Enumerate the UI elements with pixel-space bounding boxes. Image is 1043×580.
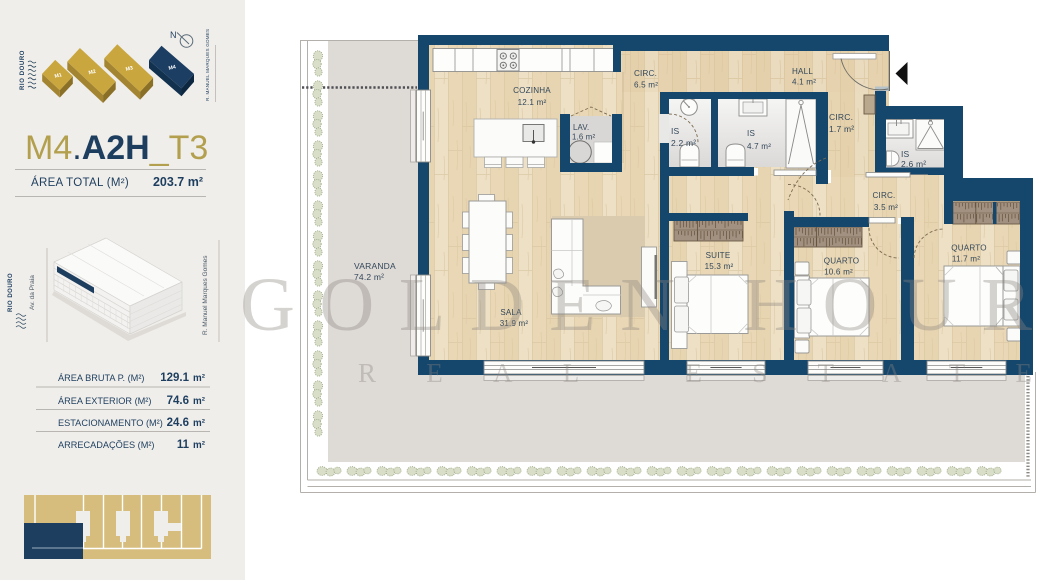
svg-text:COZINHA: COZINHA	[513, 86, 551, 95]
svg-text:12.1 m²: 12.1 m²	[518, 98, 547, 107]
svg-text:4.1 m²: 4.1 m²	[792, 78, 816, 87]
svg-text:2.2 m²: 2.2 m²	[671, 138, 696, 148]
svg-text:1.6 m²: 1.6 m²	[572, 133, 595, 142]
svg-text:6.5 m²: 6.5 m²	[634, 81, 658, 90]
svg-text:IS: IS	[901, 149, 910, 159]
svg-text:GOLDEN HOUR: GOLDEN HOUR	[240, 263, 1032, 347]
svg-text:CIRC.: CIRC.	[829, 112, 853, 122]
svg-text:QUARTO: QUARTO	[951, 244, 987, 253]
svg-text:SUITE: SUITE	[706, 251, 731, 260]
svg-text:LAV.: LAV.	[573, 123, 589, 132]
svg-text:HALL: HALL	[792, 67, 813, 76]
svg-text:3.5 m²: 3.5 m²	[874, 203, 898, 212]
svg-text:1.7 m²: 1.7 m²	[829, 124, 854, 134]
svg-text:IS: IS	[671, 126, 680, 136]
svg-text:2.6 m²: 2.6 m²	[901, 159, 926, 169]
svg-text:CIRC.: CIRC.	[634, 69, 657, 78]
svg-text:4.7 m²: 4.7 m²	[747, 142, 771, 151]
svg-text:CIRC.: CIRC.	[872, 191, 895, 200]
svg-text:IS: IS	[747, 129, 755, 138]
